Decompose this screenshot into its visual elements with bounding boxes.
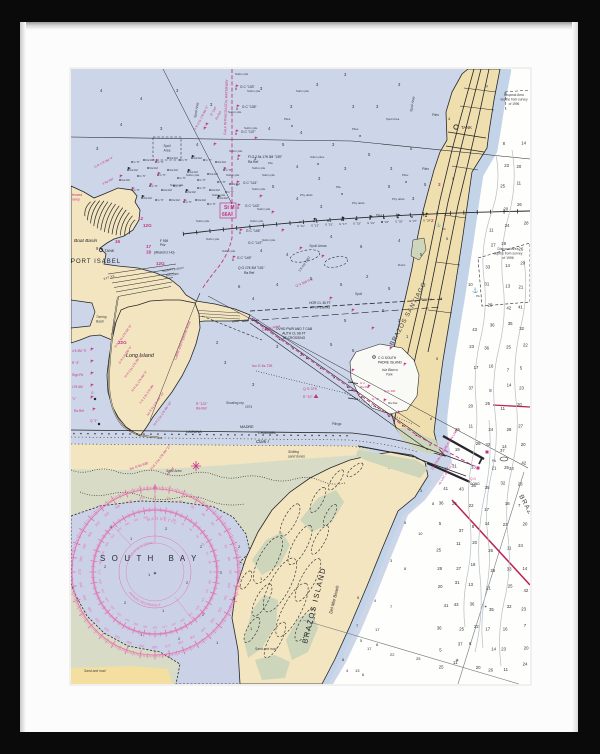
svg-text:G "9": G "9" (180, 176, 186, 180)
svg-text:41: 41 (443, 486, 448, 491)
svg-text:Isla Blanca: Isla Blanca (382, 368, 398, 372)
svg-text:36: 36 (484, 345, 489, 350)
svg-text:32: 32 (519, 326, 524, 331)
svg-text:S O U T H B A Y: S O U T H B A Y (100, 554, 199, 563)
svg-text:12G: 12G (156, 261, 165, 266)
svg-text:Area: Area (164, 149, 171, 153)
svg-text:22G: 22G (118, 340, 127, 345)
svg-text:25: 25 (485, 401, 490, 406)
svg-text:26: 26 (488, 668, 493, 673)
svg-text:12: 12 (138, 216, 144, 221)
svg-text:Ra Ref: Ra Ref (170, 156, 179, 160)
svg-text:"1": "1" (72, 397, 76, 401)
svg-text:G C "135": G C "135" (242, 105, 257, 109)
svg-text:PADRE ISLAND: PADRE ISLAND (378, 361, 403, 365)
svg-text:26: 26 (491, 568, 496, 573)
svg-text:Spoil: Spoil (355, 292, 362, 296)
svg-text:Subm pile: Subm pile (247, 89, 261, 93)
svg-text:Spoil: Spoil (163, 144, 170, 148)
svg-text:19: 19 (501, 241, 506, 246)
svg-text:G "9": G "9" (158, 160, 164, 164)
svg-text:Ra Ref: Ra Ref (220, 196, 229, 200)
svg-text:43: 43 (472, 327, 477, 332)
svg-text:31: 31 (455, 580, 460, 585)
svg-text:33: 33 (485, 265, 490, 270)
svg-text:LAGUNA: LAGUNA (186, 430, 202, 434)
svg-text:Ra Ref: Ra Ref (130, 168, 139, 172)
svg-text:G "9": G "9" (186, 200, 192, 204)
svg-text:Subm pile: Subm pile (296, 89, 309, 93)
svg-text:AT CROSSING: AT CROSSING (283, 336, 306, 340)
svg-text:16: 16 (489, 364, 494, 369)
svg-text:G C "149": G C "149" (237, 256, 252, 260)
svg-text:MADRE: MADRE (240, 425, 254, 429)
svg-text:26: 26 (517, 202, 522, 207)
svg-text:PA: PA (476, 294, 480, 298)
svg-text:17ft 6M: 17ft 6M (72, 385, 83, 389)
svg-text:⚓: ⚓ (472, 287, 478, 294)
svg-text:Piles: Piles (422, 167, 429, 171)
svg-text:36: 36 (439, 500, 444, 505)
svg-text:37: 37 (469, 386, 474, 391)
svg-text:90: 90 (228, 570, 232, 574)
svg-text:35: 35 (508, 321, 513, 326)
svg-text:Subm pile: Subm pile (226, 173, 240, 177)
svg-text:Park: Park (386, 373, 393, 377)
svg-text:Phy abds: Phy abds (392, 197, 405, 201)
svg-text:20: 20 (523, 521, 528, 526)
svg-text:25: 25 (452, 501, 457, 506)
svg-text:R "10": R "10" (303, 395, 313, 399)
svg-text:Ra Ref: Ra Ref (196, 407, 207, 411)
svg-text:24: 24 (518, 543, 523, 548)
svg-text:19: 19 (471, 562, 476, 567)
svg-text:25: 25 (439, 664, 444, 669)
svg-text:22: 22 (474, 624, 479, 629)
svg-text:23: 23 (501, 647, 506, 652)
svg-text:14: 14 (502, 444, 507, 449)
svg-text:Ra Ref: Ra Ref (218, 160, 227, 164)
svg-text:23: 23 (518, 481, 523, 486)
svg-text:20: 20 (521, 442, 526, 447)
svg-text:17: 17 (485, 626, 490, 631)
svg-text:26: 26 (476, 441, 481, 446)
svg-text:24: 24 (488, 427, 493, 432)
svg-text:14: 14 (521, 141, 526, 146)
svg-text:13: 13 (468, 582, 473, 587)
svg-text:28: 28 (507, 427, 512, 432)
svg-text:4 ft 3M "3": 4 ft 3M "3" (72, 349, 87, 353)
svg-text:42: 42 (521, 460, 526, 465)
svg-text:G "9": G "9" (210, 202, 216, 206)
svg-text:G "17": G "17" (339, 222, 347, 226)
svg-text:26: 26 (519, 247, 524, 252)
svg-text:Subm pile: Subm pile (244, 126, 258, 130)
svg-text:Clark I: Clark I (256, 439, 269, 444)
svg-text:Subm pile: Subm pile (252, 187, 266, 191)
svg-text:28: 28 (437, 566, 442, 571)
svg-text:TANK: TANK (461, 125, 472, 130)
svg-text:24: 24 (505, 223, 510, 228)
svg-text:G "13": G "13" (311, 223, 319, 227)
svg-text:Phy abds: Phy abds (300, 193, 313, 197)
svg-text:90: 90 (209, 570, 213, 574)
svg-text:14: 14 (485, 521, 490, 526)
svg-text:G "9": G "9" (200, 178, 206, 182)
svg-text:66A: 66A (222, 212, 232, 218)
svg-text:Ra Ref: Ra Ref (150, 166, 159, 170)
svg-text:Ra Ref: Ra Ref (210, 172, 219, 176)
svg-text:17: 17 (375, 627, 380, 632)
svg-text:St M: St M (224, 205, 235, 211)
svg-text:13: 13 (471, 465, 476, 470)
svg-text:Q G 30ft: Q G 30ft (384, 389, 396, 393)
svg-text:42: 42 (524, 588, 529, 593)
svg-text:G "15": G "15" (325, 223, 333, 227)
svg-text:27: 27 (491, 242, 496, 247)
svg-text:Boat Basin: Boat Basin (74, 238, 98, 244)
svg-text:20: 20 (520, 261, 525, 266)
svg-text:3: 3 (438, 182, 441, 187)
svg-text:14: 14 (507, 382, 512, 387)
svg-text:Sign PA: Sign PA (72, 373, 84, 377)
svg-text:G "9": G "9" (176, 184, 182, 188)
svg-text:21: 21 (486, 586, 491, 591)
svg-text:G "9": G "9" (134, 188, 140, 192)
svg-text:G "9": G "9" (206, 158, 212, 162)
svg-text:20: 20 (472, 540, 477, 545)
svg-text:13: 13 (444, 466, 449, 471)
svg-text:G "19": G "19" (353, 222, 361, 226)
svg-text:11: 11 (507, 546, 512, 551)
svg-text:✶: ✶ (484, 604, 487, 609)
svg-text:21: 21 (519, 285, 524, 290)
svg-text:Subm pile: Subm pile (262, 238, 276, 242)
svg-text:41: 41 (518, 305, 523, 310)
svg-text:Disposal Area: Disposal Area (498, 247, 519, 251)
svg-text:11: 11 (489, 228, 494, 233)
svg-text:20: 20 (517, 402, 522, 407)
svg-text:Phy abds: Phy abds (352, 201, 365, 205)
svg-text:25: 25 (504, 465, 509, 470)
svg-text:16: 16 (503, 626, 508, 631)
svg-text:AUTH CL 68 FT: AUTH CL 68 FT (282, 332, 306, 336)
svg-text:depths from survey: depths from survey (500, 98, 528, 102)
svg-text:41: 41 (444, 603, 449, 608)
svg-text:43: 43 (459, 486, 464, 491)
svg-text:Ra Ref: Ra Ref (194, 156, 203, 160)
svg-text:G C "141": G C "141" (243, 181, 258, 185)
svg-text:G "9": G "9" (134, 160, 140, 164)
svg-text:23: 23 (519, 385, 524, 390)
svg-text:Subm pile: Subm pile (196, 219, 210, 223)
svg-text:10: 10 (418, 531, 423, 536)
svg-text:G "11": G "11" (297, 224, 305, 228)
svg-text:Ra Ref: Ra Ref (232, 182, 241, 186)
svg-text:180: 180 (152, 645, 158, 649)
svg-text:Q G 17ft 3M "151": Q G 17ft 3M "151" (238, 266, 266, 270)
svg-text:Ra Ref: Ra Ref (122, 178, 131, 182)
svg-text:Pile: Pile (268, 161, 273, 165)
svg-text:G "27": G "27" (409, 219, 417, 223)
svg-text:36: 36 (490, 322, 495, 327)
svg-text:G "3": G "3" (372, 397, 379, 401)
svg-text:G C "137": G C "137" (241, 130, 256, 134)
svg-text:37: 37 (459, 528, 464, 533)
svg-text:180: 180 (152, 626, 157, 630)
svg-text:Ra Ref: Ra Ref (164, 188, 173, 192)
svg-text:43: 43 (454, 602, 459, 607)
svg-text:Shifting: Shifting (288, 450, 299, 454)
svg-text:21: 21 (492, 466, 497, 471)
svg-text:Ra Ref: Ra Ref (244, 271, 254, 275)
svg-text:24: 24 (523, 662, 528, 667)
svg-text:G "9": G "9" (228, 190, 234, 194)
svg-text:Ra Ref: Ra Ref (198, 198, 207, 202)
svg-text:sand dunes: sand dunes (288, 455, 305, 459)
svg-text:G "25": G "25" (395, 220, 403, 224)
svg-text:Q G 37ft: Q G 37ft (303, 387, 317, 391)
svg-text:27: 27 (518, 423, 523, 428)
svg-text:25: 25 (506, 345, 511, 350)
svg-text:23: 23 (503, 522, 508, 527)
svg-text:17: 17 (484, 507, 489, 512)
svg-text:1973: 1973 (245, 405, 252, 409)
svg-text:33: 33 (485, 442, 490, 447)
svg-text:C G SOUTH: C G SOUTH (378, 356, 397, 360)
svg-text:G "9": G "9" (158, 198, 164, 202)
svg-text:32: 32 (507, 604, 512, 609)
svg-text:G "9": G "9" (226, 168, 232, 172)
svg-text:G "9": G "9" (140, 174, 146, 178)
svg-text:✶: ✶ (455, 658, 459, 664)
svg-text:35: 35 (489, 607, 494, 612)
svg-text:of 1996: of 1996 (502, 256, 513, 260)
svg-text:Subm pile: Subm pile (252, 166, 266, 170)
svg-text:Ra Ref: Ra Ref (144, 196, 153, 200)
svg-text:20: 20 (503, 207, 508, 212)
svg-text:✶: ✶ (153, 571, 157, 577)
svg-text:22: 22 (390, 652, 395, 657)
svg-text:25: 25 (488, 302, 493, 307)
svg-text:PA: PA (442, 227, 446, 231)
svg-text:Ra Ref: Ra Ref (146, 158, 155, 162)
svg-text:13: 13 (505, 283, 510, 288)
svg-text:Q "1": Q "1" (90, 419, 97, 423)
svg-text:G C "145": G C "145" (246, 229, 261, 233)
svg-text:35: 35 (485, 485, 490, 490)
svg-text:16: 16 (505, 501, 510, 506)
svg-text:G "9": G "9" (152, 184, 158, 188)
svg-text:25: 25 (508, 584, 513, 589)
svg-text:25: 25 (436, 548, 441, 553)
svg-text:Basin: Basin (96, 320, 104, 324)
svg-text:Q G: Q G (470, 477, 476, 481)
svg-text:(Aband Lt Ho): (Aband Lt Ho) (154, 251, 175, 255)
svg-text:Sand and mud: Sand and mud (84, 669, 106, 673)
svg-text:33: 33 (507, 566, 512, 571)
svg-text:fenced: fenced (72, 193, 82, 197)
svg-text:TANK: TANK (105, 249, 115, 253)
svg-text:AT OPENING: AT OPENING (310, 306, 330, 310)
svg-text:20: 20 (438, 584, 443, 589)
svg-text:20: 20 (476, 665, 481, 670)
svg-text:10: 10 (468, 282, 473, 287)
svg-text:11: 11 (504, 667, 509, 672)
svg-text:G "9": G "9" (182, 158, 188, 162)
svg-text:Spoil Area: Spoil Area (386, 117, 400, 121)
svg-text:23: 23 (521, 606, 526, 611)
svg-text:Ra Ref: Ra Ref (360, 385, 370, 389)
svg-text:Subm piles: Subm piles (418, 297, 433, 301)
svg-text:11: 11 (501, 406, 506, 411)
svg-text:11: 11 (456, 541, 461, 546)
svg-text:⚓: ⚓ (436, 222, 441, 227)
svg-text:22: 22 (523, 343, 528, 348)
svg-text:20: 20 (517, 164, 522, 169)
svg-text:G "9": G "9" (220, 180, 226, 184)
svg-text:31: 31 (485, 282, 490, 287)
svg-text:Disposal Area: Disposal Area (504, 93, 524, 97)
svg-text:23: 23 (469, 344, 474, 349)
svg-text:12G: 12G (143, 223, 152, 228)
svg-text:23: 23 (504, 163, 509, 168)
svg-text:270: 270 (78, 569, 82, 575)
svg-text:Ra Ref: Ra Ref (172, 198, 181, 202)
svg-text:36: 36 (437, 625, 442, 630)
svg-text:G "9": G "9" (160, 173, 166, 177)
svg-text:28: 28 (524, 220, 529, 225)
svg-text:Piles: Piles (432, 113, 439, 117)
svg-text:CHANNEL: CHANNEL (258, 431, 276, 435)
svg-text:37: 37 (458, 641, 463, 646)
svg-text:270: 270 (98, 569, 102, 574)
svg-text:26: 26 (488, 548, 493, 553)
svg-text:16: 16 (115, 239, 121, 244)
svg-text:ramp: ramp (72, 198, 80, 202)
svg-text:0: 0 (154, 495, 156, 499)
svg-text:OVHD PWR AND T CAB: OVHD PWR AND T CAB (276, 327, 313, 331)
svg-text:Piles: Piles (352, 127, 359, 131)
svg-text:31: 31 (452, 463, 457, 468)
svg-text:Subm pile: Subm pile (257, 207, 271, 211)
svg-text:14: 14 (523, 566, 528, 571)
svg-text:G "29": G "29" (423, 218, 431, 222)
svg-text:Piles: Piles (402, 173, 409, 177)
svg-text:PORT ISABEL: PORT ISABEL (71, 259, 121, 265)
svg-text:Pilings: Pilings (332, 422, 342, 426)
svg-text:Shoaling rep: Shoaling rep (226, 401, 244, 405)
svg-text:Ra Ref: Ra Ref (74, 409, 84, 413)
svg-text:26: 26 (455, 427, 460, 432)
svg-text:13: 13 (355, 668, 360, 673)
svg-text:20: 20 (524, 645, 529, 650)
svg-text:42: 42 (506, 306, 511, 311)
svg-text:Ra Ref: Ra Ref (388, 401, 398, 405)
svg-text:Turning: Turning (96, 315, 107, 319)
svg-text:Ruins: Ruins (398, 263, 406, 267)
svg-text:Spoil Area: Spoil Area (166, 469, 182, 473)
svg-text:Subm pile: Subm pile (222, 249, 236, 253)
svg-text:11: 11 (469, 424, 474, 429)
svg-text:36: 36 (471, 483, 476, 488)
svg-text:Piles: Piles (284, 117, 291, 121)
svg-text:18: 18 (146, 250, 152, 255)
svg-text:R "4": R "4" (72, 361, 79, 365)
svg-text:14: 14 (491, 647, 496, 652)
svg-text:Priv: Priv (160, 243, 166, 247)
svg-text:11: 11 (517, 181, 522, 186)
svg-text:17: 17 (474, 365, 479, 370)
svg-text:19: 19 (455, 447, 460, 452)
svg-text:G "9": G "9" (200, 186, 206, 190)
svg-text:25: 25 (416, 656, 421, 661)
svg-text:Ra Ref: Ra Ref (188, 190, 197, 194)
svg-text:Subm pile: Subm pile (262, 173, 275, 177)
svg-text:2: 2 (431, 218, 434, 223)
svg-text:17: 17 (367, 646, 372, 651)
svg-text:G "23": G "23" (381, 220, 389, 224)
svg-text:Subm pile: Subm pile (228, 110, 242, 114)
svg-text:17: 17 (146, 244, 152, 249)
svg-text:32: 32 (501, 481, 506, 486)
svg-text:22: 22 (469, 503, 474, 508)
svg-text:25: 25 (459, 626, 464, 631)
svg-text:Ra Ref: Ra Ref (170, 168, 179, 172)
svg-text:Spoil Areas: Spoil Areas (309, 244, 326, 248)
svg-text:depths from survey: depths from survey (494, 252, 523, 256)
svg-text:Subm pile: Subm pile (250, 219, 264, 223)
svg-text:Piles: Piles (376, 213, 383, 217)
svg-text:Pile: Pile (336, 185, 341, 189)
svg-text:Iso G 6s 72ft: Iso G 6s 72ft (252, 364, 272, 368)
svg-text:Subm pile: Subm pile (206, 237, 220, 241)
svg-text:Subm pile: Subm pile (229, 149, 243, 153)
svg-text:33: 33 (509, 466, 514, 471)
svg-text:36: 36 (470, 602, 475, 607)
svg-text:Subm piles: Subm piles (310, 155, 325, 159)
svg-text:HOR CL 36 FT: HOR CL 36 FT (309, 301, 331, 305)
svg-text:Ra Ref: Ra Ref (190, 170, 199, 174)
svg-text:14: 14 (505, 263, 510, 268)
svg-text:Sand and mud: Sand and mud (255, 647, 277, 651)
svg-text:27: 27 (456, 566, 461, 571)
svg-text:25: 25 (500, 184, 505, 189)
svg-text:Subm pile: Subm pile (235, 72, 249, 76)
svg-text:Ra Ref: Ra Ref (212, 188, 221, 192)
svg-text:R "122": R "122" (196, 402, 208, 406)
svg-text:G "21": G "21" (367, 221, 375, 225)
svg-text:of 1996: of 1996 (509, 102, 520, 106)
svg-text:20: 20 (468, 404, 473, 409)
